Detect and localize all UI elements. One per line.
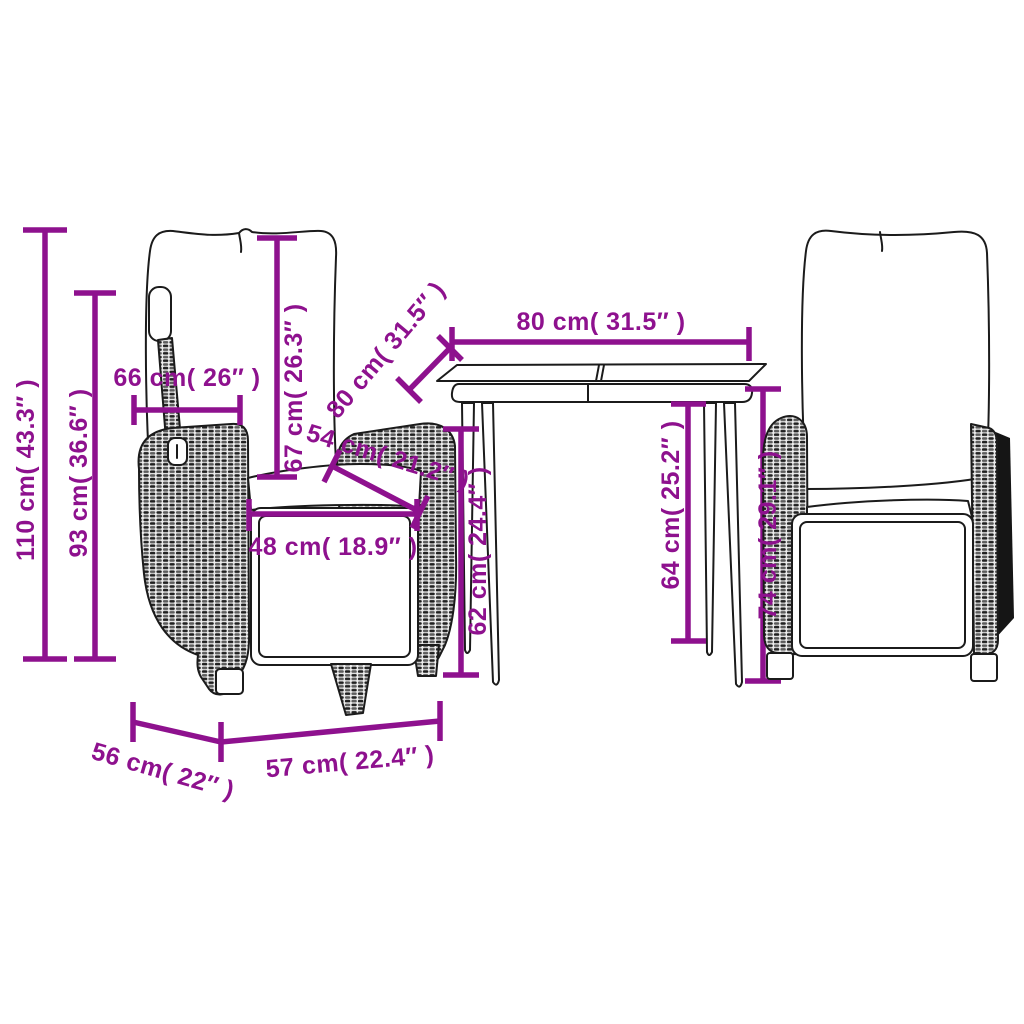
table-leg-height-label: 64 cm( 25.2″ ) [657,420,685,589]
backrest-height-label: 67 cm( 26.3″ ) [280,303,308,472]
table-width-label: 80 cm( 31.5″ ) [516,308,685,336]
right-chair-front-foot [767,653,793,679]
table-leg-back-right [724,403,742,687]
left-chair-side-panel [139,424,250,695]
furniture-dimension-diagram: 110 cm( 43.3″ ) 93 cm( 36.6″ ) 66 cm( 26… [0,0,1024,1024]
left-chair-front-leg [331,664,371,715]
armrest-height-label: 74 cm( 29.1″ ) [754,450,782,619]
chair-back-floor-height-label: 93 cm( 36.6″ ) [65,388,93,557]
right-chair-back-cushion [802,231,989,489]
dim-seat-base-width-line [221,701,440,742]
right-chair-back-support [971,424,998,654]
left-chair-recline-handle [149,287,171,341]
left-chair-left-foot [216,669,243,694]
chair-total-height-label: 110 cm( 43.3″ ) [12,379,40,561]
seat-front-width-label: 48 cm( 18.9″ ) [248,533,417,561]
right-reclining-chair [763,231,1014,681]
seat-base-depth-label: 56 cm( 22″ ) [88,737,237,804]
right-chair-back-foot [971,654,997,681]
seat-base-width-label: 57 cm( 22.4″ ) [265,741,436,784]
right-chair-side-panel [792,514,973,656]
table-clearance-height-label: 62 cm( 24.4″ ) [464,466,492,635]
table-apron [452,384,752,402]
table-leg-front-right [704,403,716,655]
left-chair-front-skirt [251,508,418,665]
table-depth-label: 80 cm( 31.5″ ) [321,276,451,424]
backrest-width-label: 66 cm( 26″ ) [113,364,260,392]
